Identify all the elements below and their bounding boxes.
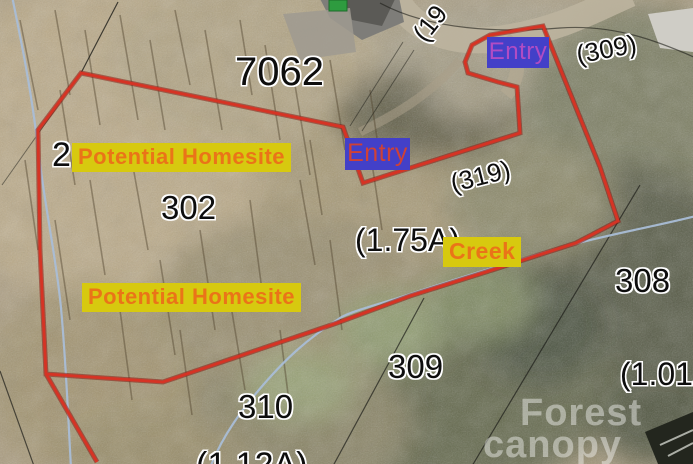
parcel-label-2: 2 (52, 138, 71, 172)
parcel-label-308: 308 (615, 264, 670, 297)
annotation-potential-homesite-upper: Potential Homesite (72, 143, 291, 172)
annotation-creek: Creek (443, 237, 521, 267)
parcel-label-7062: 7062 (235, 52, 324, 92)
annotation-entry-middle: Entry (345, 138, 410, 170)
parcel-label-310: 310 (238, 390, 293, 423)
parcel-label-302: 302 (161, 191, 216, 224)
parcel-label-309: 309 (388, 350, 443, 383)
watermark-line2: canopy 2022 (483, 424, 693, 464)
acreage-label-112: (1.12A) (196, 448, 308, 464)
annotation-potential-homesite-lower: Potential Homesite (82, 283, 301, 312)
acreage-label-101: (1.01A) (620, 358, 693, 390)
green-marker-icon (329, 0, 347, 11)
aerial-parcel-map[interactable]: 7062 2 302 308 309 310 (1.75A) (1.01A) (… (0, 0, 693, 464)
annotation-entry-upper: Entry (487, 37, 549, 68)
